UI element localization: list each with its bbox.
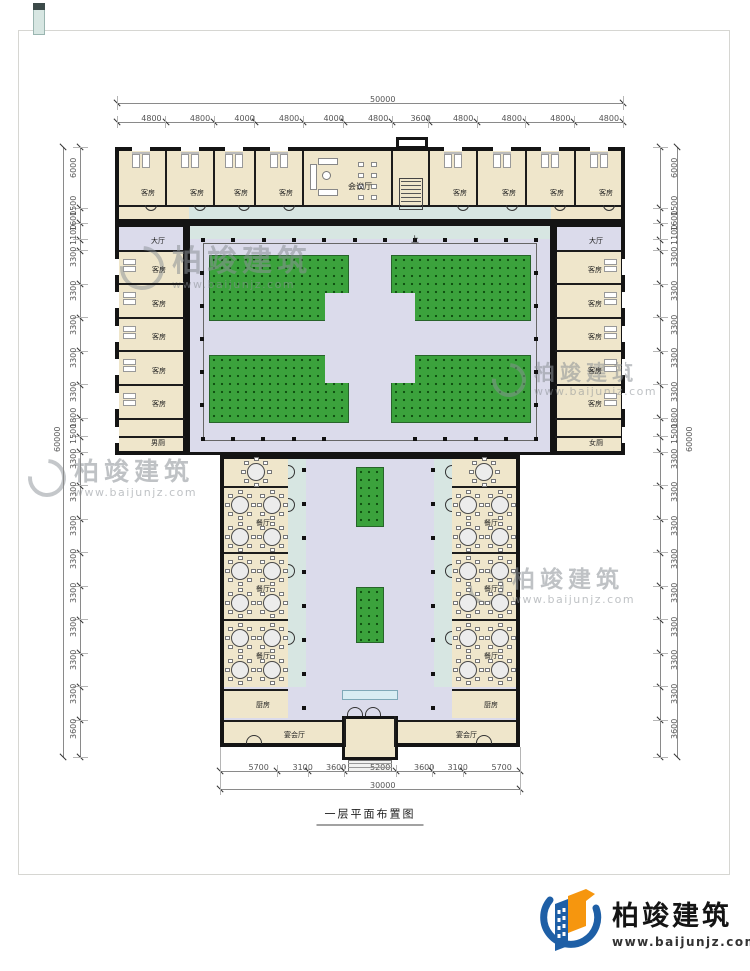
- chair-icon: [257, 535, 262, 539]
- chair-icon: [498, 582, 503, 586]
- dim-extension: [477, 116, 478, 128]
- column-dot: [534, 370, 538, 374]
- wall: [119, 250, 183, 252]
- column-dot: [534, 271, 538, 275]
- bed-icon: [123, 266, 136, 272]
- chair-icon: [498, 588, 503, 592]
- chair-icon: [475, 592, 480, 596]
- door-arc: [476, 735, 492, 744]
- chair-icon: [270, 582, 275, 586]
- dim-extension: [73, 147, 88, 148]
- column-dot: [431, 706, 435, 710]
- chair-icon: [257, 668, 262, 672]
- wall-partition: [428, 151, 430, 205]
- bed-icon: [604, 299, 617, 305]
- chair-icon: [453, 535, 458, 539]
- door-arc: [445, 631, 452, 645]
- chair-icon: [475, 610, 480, 614]
- dim-extension: [520, 747, 521, 795]
- chair-icon: [247, 526, 252, 530]
- chair-icon: [279, 560, 284, 564]
- chair-icon: [456, 544, 461, 548]
- chair-icon: [238, 588, 243, 592]
- stair-step: [401, 201, 421, 202]
- column-dot: [201, 437, 205, 441]
- chair-icon: [472, 479, 477, 483]
- column-dot: [431, 638, 435, 642]
- sofa-icon: [318, 189, 338, 196]
- chair-icon: [254, 483, 259, 487]
- chair-icon: [456, 578, 461, 582]
- window: [115, 359, 119, 375]
- window: [444, 147, 462, 151]
- chair-icon: [247, 627, 252, 631]
- chair-icon: [228, 494, 233, 498]
- chair-icon: [511, 636, 516, 640]
- wall-partition: [525, 151, 527, 205]
- chair-icon: [228, 578, 233, 582]
- wall-partition: [213, 151, 215, 205]
- chair-icon: [498, 649, 503, 653]
- chair-icon: [485, 503, 490, 507]
- wall-partition: [555, 317, 621, 319]
- bed-icon: [604, 393, 617, 399]
- column-dot: [302, 468, 306, 472]
- bed-icon: [280, 154, 288, 168]
- chair-icon: [498, 623, 503, 627]
- dim-extension: [277, 765, 278, 777]
- chair-icon: [475, 544, 480, 548]
- wall: [557, 250, 621, 252]
- window: [115, 427, 119, 443]
- chair-icon: [456, 512, 461, 516]
- bed-icon: [604, 333, 617, 339]
- lawn-notch: [325, 355, 349, 383]
- chair-icon: [479, 636, 484, 640]
- column-dot: [292, 437, 296, 441]
- column-dot: [292, 238, 296, 242]
- chair-icon: [358, 195, 364, 200]
- wall-partition: [555, 283, 621, 285]
- chair-icon: [270, 490, 275, 494]
- bed-icon: [604, 366, 617, 372]
- chair-icon: [485, 569, 490, 573]
- dim-line: [63, 147, 64, 757]
- column-dot: [534, 403, 538, 407]
- dim-extension: [303, 116, 304, 128]
- dim-extension: [653, 384, 668, 385]
- bed-icon: [604, 359, 617, 365]
- chair-icon: [279, 494, 284, 498]
- dim-extension: [117, 116, 118, 128]
- column-dot: [200, 304, 204, 308]
- chair-icon: [472, 461, 477, 465]
- chair-icon: [251, 535, 256, 539]
- column-dot: [322, 437, 326, 441]
- window: [115, 326, 119, 342]
- chair-icon: [228, 544, 233, 548]
- chair-icon: [498, 490, 503, 494]
- dim-extension: [653, 552, 668, 553]
- window: [225, 147, 243, 151]
- column-dot: [231, 437, 235, 441]
- door-arc: [347, 707, 363, 716]
- window: [115, 292, 119, 308]
- chair-icon: [270, 681, 275, 685]
- chair-icon: [498, 614, 503, 618]
- chair-icon: [507, 526, 512, 530]
- column-dot: [302, 570, 306, 574]
- chair-icon: [485, 601, 490, 605]
- chair-icon: [456, 659, 461, 663]
- chair-icon: [456, 610, 461, 614]
- bed-icon: [600, 154, 608, 168]
- bed-icon: [123, 259, 136, 265]
- door-arc: [365, 707, 381, 716]
- chair-icon: [247, 512, 252, 516]
- chair-icon: [511, 535, 516, 539]
- chair-icon: [475, 659, 480, 663]
- chair-icon: [228, 627, 233, 631]
- chair-icon: [254, 457, 259, 461]
- chair-icon: [485, 668, 490, 672]
- bed-icon: [123, 393, 136, 399]
- dim-extension: [653, 223, 668, 224]
- chair-icon: [475, 578, 480, 582]
- window: [115, 393, 119, 409]
- lawn-notch: [325, 293, 349, 321]
- column-dot: [302, 604, 306, 608]
- bed-icon: [493, 154, 501, 168]
- dim-extension: [653, 284, 668, 285]
- chair-icon: [247, 677, 252, 681]
- chair-icon: [251, 569, 256, 573]
- chair-icon: [270, 556, 275, 560]
- planter-strip-2: [356, 587, 384, 643]
- bed-icon: [191, 154, 199, 168]
- chair-icon: [257, 636, 262, 640]
- door-arc: [246, 735, 262, 744]
- dim-extension: [73, 757, 88, 758]
- chair-icon: [260, 578, 265, 582]
- chair-icon: [238, 681, 243, 685]
- chair-icon: [257, 569, 262, 573]
- chair-icon: [263, 479, 268, 483]
- sofa-icon: [310, 164, 317, 190]
- bed-icon: [123, 326, 136, 332]
- column-dot: [302, 638, 306, 642]
- entrance-vestibule: [342, 716, 398, 760]
- chair-icon: [488, 544, 493, 548]
- chair-icon: [238, 556, 243, 560]
- column-dot: [200, 403, 204, 407]
- chair-icon: [498, 681, 503, 685]
- column-dot: [261, 437, 265, 441]
- chair-icon: [225, 601, 230, 605]
- bed-icon: [503, 154, 511, 168]
- chair-icon: [475, 560, 480, 564]
- bed-icon: [123, 333, 136, 339]
- chair-icon: [466, 614, 471, 618]
- wall-partition: [555, 418, 621, 420]
- chair-icon: [479, 601, 484, 605]
- dim-extension: [254, 116, 255, 128]
- wall-partition: [574, 151, 576, 205]
- wall-partition: [119, 436, 185, 438]
- chair-icon: [260, 645, 265, 649]
- wall-partition: [165, 151, 167, 205]
- dim-extension: [653, 485, 668, 486]
- chair-icon: [498, 655, 503, 659]
- chair-icon: [469, 470, 474, 474]
- column-dot: [302, 536, 306, 540]
- chair-icon: [257, 503, 262, 507]
- chair-icon: [260, 544, 265, 548]
- chair-icon: [507, 610, 512, 614]
- chair-icon: [507, 494, 512, 498]
- chair-icon: [475, 526, 480, 530]
- chair-icon: [247, 645, 252, 649]
- chair-icon: [511, 569, 516, 573]
- chair-icon: [228, 512, 233, 516]
- chair-icon: [225, 636, 230, 640]
- dim-extension: [428, 116, 429, 128]
- reflecting-pool: [342, 690, 398, 700]
- dim-extension: [653, 653, 668, 654]
- chair-icon: [260, 512, 265, 516]
- step-line: [348, 763, 392, 764]
- chair-icon: [238, 623, 243, 627]
- dim-extension: [653, 147, 668, 148]
- column-dot: [443, 437, 447, 441]
- chair-icon: [498, 522, 503, 526]
- dim-extension: [653, 686, 668, 687]
- column-dot: [431, 502, 435, 506]
- column-dot: [200, 370, 204, 374]
- dim-extension: [653, 619, 668, 620]
- column-dot: [431, 604, 435, 608]
- chair-icon: [482, 457, 487, 461]
- chair-icon: [283, 601, 288, 605]
- chair-icon: [488, 610, 493, 614]
- chair-icon: [507, 592, 512, 596]
- step-line: [348, 767, 392, 768]
- dim-extension: [525, 116, 526, 128]
- chair-icon: [456, 677, 461, 681]
- dim-extension: [653, 418, 668, 419]
- chair-icon: [279, 578, 284, 582]
- chair-icon: [456, 627, 461, 631]
- bed-icon: [270, 154, 278, 168]
- column-dot: [302, 502, 306, 506]
- chair-icon: [498, 556, 503, 560]
- wall-partition: [452, 619, 516, 621]
- lawn-notch: [391, 355, 415, 383]
- column-dot: [322, 238, 326, 242]
- stair-step: [401, 181, 421, 182]
- dim-extension: [653, 239, 668, 240]
- stair-step: [401, 185, 421, 186]
- bed-icon: [444, 154, 452, 168]
- chair-icon: [488, 645, 493, 649]
- courtyard-north-walkway: [190, 226, 550, 239]
- floor-plan-canvas: 柏竣建筑 www.baijunjz.com 柏竣建筑 www.baijunjz.…: [0, 0, 750, 971]
- dim-extension: [396, 765, 397, 777]
- chair-icon: [466, 582, 471, 586]
- chair-icon: [228, 610, 233, 614]
- chair-icon: [475, 677, 480, 681]
- column-dot: [302, 672, 306, 676]
- chair-icon: [491, 461, 496, 465]
- dim-extension: [653, 586, 668, 587]
- chair-icon: [238, 655, 243, 659]
- chair-icon: [475, 512, 480, 516]
- chair-icon: [488, 512, 493, 516]
- column-dot: [504, 238, 508, 242]
- chair-icon: [507, 512, 512, 516]
- wall-partition: [302, 151, 304, 205]
- dim-extension: [214, 116, 215, 128]
- chair-icon: [244, 479, 249, 483]
- chair-icon: [228, 645, 233, 649]
- chair-icon: [267, 470, 272, 474]
- bed-icon: [604, 266, 617, 272]
- bed-icon: [225, 154, 233, 168]
- chair-icon: [283, 569, 288, 573]
- bed-icon: [181, 154, 189, 168]
- chair-icon: [479, 503, 484, 507]
- chair-icon: [485, 535, 490, 539]
- chair-icon: [283, 535, 288, 539]
- door-arc: [445, 564, 452, 578]
- wall-partition: [119, 350, 185, 352]
- chair-icon: [251, 601, 256, 605]
- chair-icon: [279, 645, 284, 649]
- chair-icon: [498, 516, 503, 520]
- chair-icon: [456, 560, 461, 564]
- chair-icon: [466, 655, 471, 659]
- chair-icon: [466, 522, 471, 526]
- chair-icon: [279, 677, 284, 681]
- column-dot: [353, 238, 357, 242]
- company-logo: 柏竣建筑 www.baijunjz.com: [538, 884, 750, 958]
- window: [590, 147, 608, 151]
- chair-icon: [270, 522, 275, 526]
- chair-icon: [247, 544, 252, 548]
- bed-icon: [123, 359, 136, 365]
- left-wing-block: [115, 223, 187, 455]
- chair-icon: [263, 461, 268, 465]
- chair-icon: [257, 601, 262, 605]
- chair-icon: [228, 659, 233, 663]
- chair-icon: [488, 560, 493, 564]
- bed-icon: [551, 154, 559, 168]
- window: [622, 359, 626, 375]
- dim-extension: [574, 116, 575, 128]
- chair-icon: [456, 645, 461, 649]
- dim-extension: [343, 116, 344, 128]
- dim-extension: [653, 208, 668, 209]
- column-dot: [431, 468, 435, 472]
- planter-strip-1: [356, 467, 384, 527]
- window: [622, 326, 626, 342]
- stair-step: [401, 197, 421, 198]
- chair-icon: [466, 649, 471, 653]
- chair-icon: [371, 162, 377, 167]
- wall-partition: [391, 151, 393, 205]
- chair-icon: [270, 614, 275, 618]
- chair-icon: [488, 677, 493, 681]
- column-dot: [504, 437, 508, 441]
- chair-icon: [475, 645, 480, 649]
- window: [622, 393, 626, 409]
- wall-partition: [555, 436, 621, 438]
- chair-icon: [488, 627, 493, 631]
- lawn-notch: [391, 293, 415, 321]
- wall-partition: [344, 716, 346, 747]
- dim-extension: [220, 747, 221, 795]
- chair-icon: [270, 623, 275, 627]
- dim-extension: [344, 765, 345, 777]
- window: [541, 147, 559, 151]
- chair-icon: [279, 512, 284, 516]
- window: [493, 147, 511, 151]
- chair-icon: [453, 668, 458, 672]
- dim-extension: [117, 96, 118, 110]
- chair-icon: [228, 526, 233, 530]
- dim-extension: [653, 757, 668, 758]
- column-dot: [474, 437, 478, 441]
- chair-icon: [507, 645, 512, 649]
- dim-extension: [653, 519, 668, 520]
- dim-extension: [165, 116, 166, 128]
- chair-icon: [251, 668, 256, 672]
- chair-icon: [238, 649, 243, 653]
- chair-icon: [488, 494, 493, 498]
- chair-icon: [270, 655, 275, 659]
- chair-icon: [270, 516, 275, 520]
- chair-icon: [507, 677, 512, 681]
- bed-icon: [604, 400, 617, 406]
- chair-icon: [251, 636, 256, 640]
- chair-icon: [453, 569, 458, 573]
- chair-icon: [485, 636, 490, 640]
- chair-icon: [479, 569, 484, 573]
- chair-icon: [260, 627, 265, 631]
- chair-icon: [238, 490, 243, 494]
- logo-site-text: www.baijunjz.com: [612, 935, 750, 949]
- door-arc: [445, 498, 452, 512]
- chair-icon: [244, 461, 249, 465]
- wall-partition: [119, 283, 185, 285]
- column-dot: [200, 337, 204, 341]
- wall-partition: [555, 384, 621, 386]
- wall-partition: [119, 317, 185, 319]
- chair-icon: [241, 470, 246, 474]
- bed-icon: [454, 154, 462, 168]
- chair-icon: [279, 592, 284, 596]
- wall-partition: [119, 418, 185, 420]
- chair-icon: [279, 627, 284, 631]
- bed-icon: [541, 154, 549, 168]
- chair-icon: [238, 582, 243, 586]
- chair-icon: [228, 677, 233, 681]
- bed-icon: [604, 292, 617, 298]
- wall-partition: [224, 619, 288, 621]
- chair-icon: [511, 668, 516, 672]
- dim-extension: [653, 436, 668, 437]
- wall-partition: [555, 350, 621, 352]
